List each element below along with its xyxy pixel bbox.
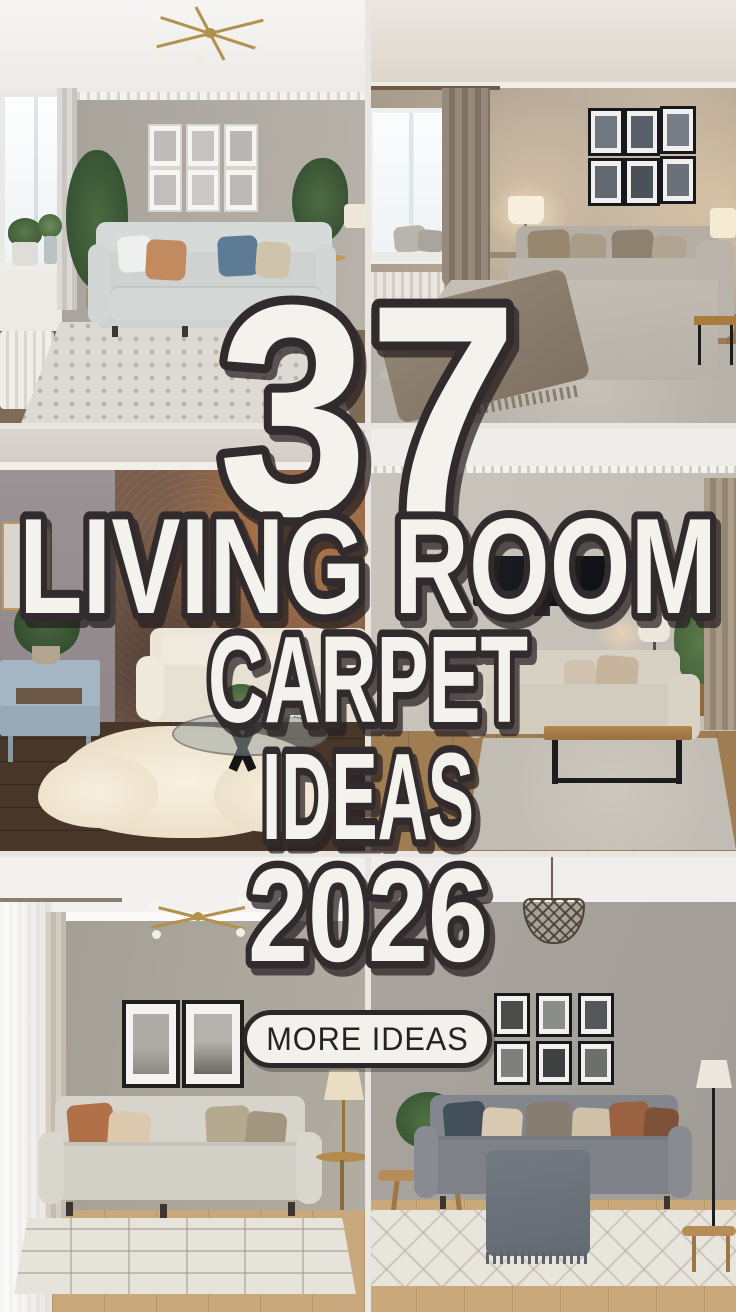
stool-leg (726, 1236, 730, 1272)
console-opening (16, 688, 82, 704)
side-table-leg (698, 325, 701, 365)
ceiling (368, 0, 736, 86)
throw-fringe (486, 1252, 590, 1264)
window-seat-pillow (417, 229, 445, 253)
gallery-frame (186, 168, 220, 212)
photo-taupe-sectional (368, 0, 736, 426)
gold-frame (2, 522, 24, 610)
gallery-frame-black (578, 993, 614, 1037)
pillow-tan (145, 239, 187, 281)
sofa-back-pillow (230, 634, 294, 664)
gallery-frame-black (624, 158, 660, 206)
wall-panel-below-window (0, 271, 62, 331)
curtains (704, 478, 736, 730)
console-leg (8, 736, 13, 762)
sheepskin-lobe (38, 756, 158, 828)
dentil-molding (368, 466, 736, 473)
side-table-wood (694, 316, 736, 325)
sill-vase (44, 236, 57, 264)
floor-lamp-shade (324, 1070, 364, 1100)
sofa-arm (296, 1132, 322, 1204)
sofa-seat-cushions (110, 286, 322, 320)
gallery-frame (224, 168, 258, 212)
coffee-table-glass (172, 712, 328, 756)
pendant-stem (551, 854, 553, 898)
sofa-seat (48, 1142, 312, 1200)
gallery-frame-black (660, 156, 696, 204)
tv-mount (534, 606, 550, 616)
gallery-frame-black (660, 106, 696, 154)
gallery-frame (186, 124, 220, 168)
gallery-frame-black (624, 108, 660, 156)
sofa-arm (414, 1126, 438, 1198)
framed-art (122, 1000, 180, 1088)
floor-lamp-pole (342, 1100, 345, 1154)
photo-greige-terracotta-pillows (0, 854, 368, 1312)
table-lamp-shade (508, 196, 544, 224)
ceiling (0, 426, 368, 466)
side-table-leg (340, 1160, 344, 1210)
gallery-frame-black (588, 158, 624, 206)
grid-divider-vertical (365, 0, 371, 1312)
gallery-frame-black (536, 1041, 572, 1085)
gallery-frame-black (588, 108, 624, 156)
corner-lamp-shade (710, 208, 736, 238)
sill-plant-pot (12, 242, 38, 266)
gallery-frame-black (578, 1041, 614, 1085)
rug-dotted (20, 322, 354, 426)
stool-leg (692, 1236, 696, 1272)
pin-collage: 37 LIVING ROOM CARPET IDEAS 2026 MORE ID… (0, 0, 736, 1312)
stool-table (682, 1226, 736, 1236)
floor-lamp-shade (638, 616, 670, 642)
pillow-beige (255, 241, 291, 279)
photo-tv-wall-beige-sofa (368, 426, 736, 854)
gallery-frame-black (536, 993, 572, 1037)
console-plant-pot (32, 646, 60, 664)
gallery-frame-black (494, 1041, 530, 1085)
ceiling (368, 426, 736, 470)
sofa-arm (88, 244, 110, 324)
tv (473, 556, 611, 606)
chandelier-sputnik (150, 2, 270, 66)
sofa-arm (668, 1126, 692, 1198)
grid-divider-horizontal-1 (0, 423, 736, 429)
side-table-leg (730, 325, 733, 365)
gallery-frame (148, 168, 182, 212)
more-ideas-label: MORE IDEAS (266, 1021, 468, 1058)
coffee-table-top (544, 726, 692, 740)
floor-lamp-pole (712, 1088, 715, 1228)
photo-gray-sofa-trellis-rug (368, 854, 736, 1312)
sofa-back-pillow (162, 634, 226, 664)
photo-gray-sofa-dotted-rug (0, 0, 368, 426)
more-ideas-button[interactable]: MORE IDEAS (242, 1010, 492, 1068)
chandelier-sputnik (150, 892, 246, 944)
sofa-arm (38, 1132, 64, 1204)
crown-molding (0, 462, 368, 470)
photo-copper-wall-sheepskin (0, 426, 368, 854)
table-plant (222, 684, 260, 716)
grid-divider-horizontal-2 (0, 851, 736, 857)
gallery-frame (224, 124, 258, 168)
floor-lamp-shade (696, 1060, 732, 1088)
table-books (262, 708, 294, 717)
sofa-arm (136, 656, 164, 720)
throw-blanket (486, 1150, 590, 1256)
pillow-blue (217, 235, 259, 277)
curtain (442, 88, 490, 286)
sill-vase-plant (38, 214, 62, 238)
coffee-table-stretcher (552, 778, 682, 783)
framed-art (182, 1000, 244, 1088)
gallery-frame (148, 124, 182, 168)
rug (464, 738, 736, 850)
sofa-arm (466, 676, 486, 738)
gallery-frame-black (494, 993, 530, 1037)
rug-geometric (14, 1218, 356, 1294)
